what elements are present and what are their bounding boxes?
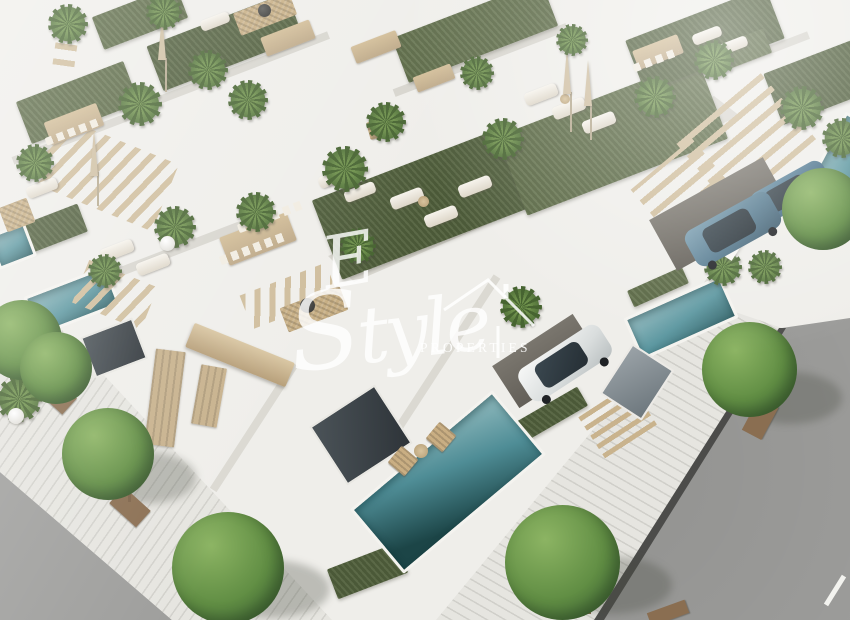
parasol-pole	[165, 58, 167, 92]
potted-palm	[228, 80, 268, 120]
watermark: E Style PROPERTIES	[282, 236, 582, 386]
potted-palm	[694, 40, 734, 80]
aerial-villa-render: E Style PROPERTIES	[0, 0, 850, 620]
wood-door-panel	[144, 349, 185, 448]
potted-palm	[460, 56, 494, 90]
house-outline-icon	[440, 276, 540, 362]
potted-palm	[146, 0, 182, 30]
street-tree	[20, 332, 92, 404]
potted-palm	[188, 50, 228, 90]
potted-palm	[556, 24, 588, 56]
parasol-pole	[97, 172, 99, 206]
plant-pot	[8, 408, 24, 424]
potted-palm	[118, 82, 162, 126]
potted-palm	[48, 4, 88, 44]
potted-palm	[322, 146, 368, 192]
potted-palm	[748, 250, 782, 284]
plant-pot	[160, 236, 175, 251]
dining-table	[350, 30, 401, 64]
street-tree	[62, 408, 154, 500]
street-tree	[702, 322, 797, 417]
potted-palm	[366, 102, 406, 142]
street-tree	[505, 505, 620, 620]
potted-palm	[88, 254, 122, 288]
wood-door-panel	[191, 364, 227, 428]
potted-palm	[634, 76, 676, 118]
street-tree	[172, 512, 284, 620]
potted-palm	[16, 144, 54, 182]
potted-palm	[236, 192, 276, 232]
closed-parasol	[584, 60, 592, 106]
sun-lounger	[523, 82, 559, 106]
potted-palm	[780, 86, 824, 130]
fire-bowl	[258, 4, 271, 17]
side-table	[418, 196, 429, 207]
parasol-pole	[590, 104, 592, 140]
parasol-pole	[570, 92, 572, 132]
patio-table	[414, 444, 428, 458]
potted-palm	[482, 118, 524, 160]
closed-parasol	[90, 130, 98, 176]
street-tree	[782, 168, 850, 250]
side-table	[560, 94, 570, 104]
